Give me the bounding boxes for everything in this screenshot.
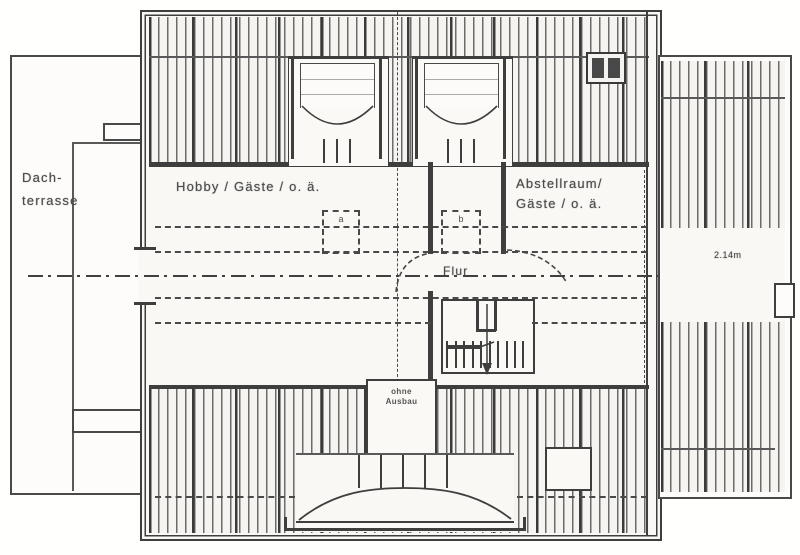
curves-overlay bbox=[0, 0, 800, 555]
hobby-door-swing bbox=[396, 253, 431, 292]
attic-floor-plan: Dach- terrasse bbox=[0, 0, 800, 555]
storage-door-swing bbox=[507, 250, 567, 283]
stair-direction-arrowhead bbox=[482, 363, 492, 375]
dormer-1-arc bbox=[302, 106, 373, 124]
bottom-dormer-arc bbox=[299, 488, 511, 520]
dormer-2-arc bbox=[426, 106, 497, 124]
